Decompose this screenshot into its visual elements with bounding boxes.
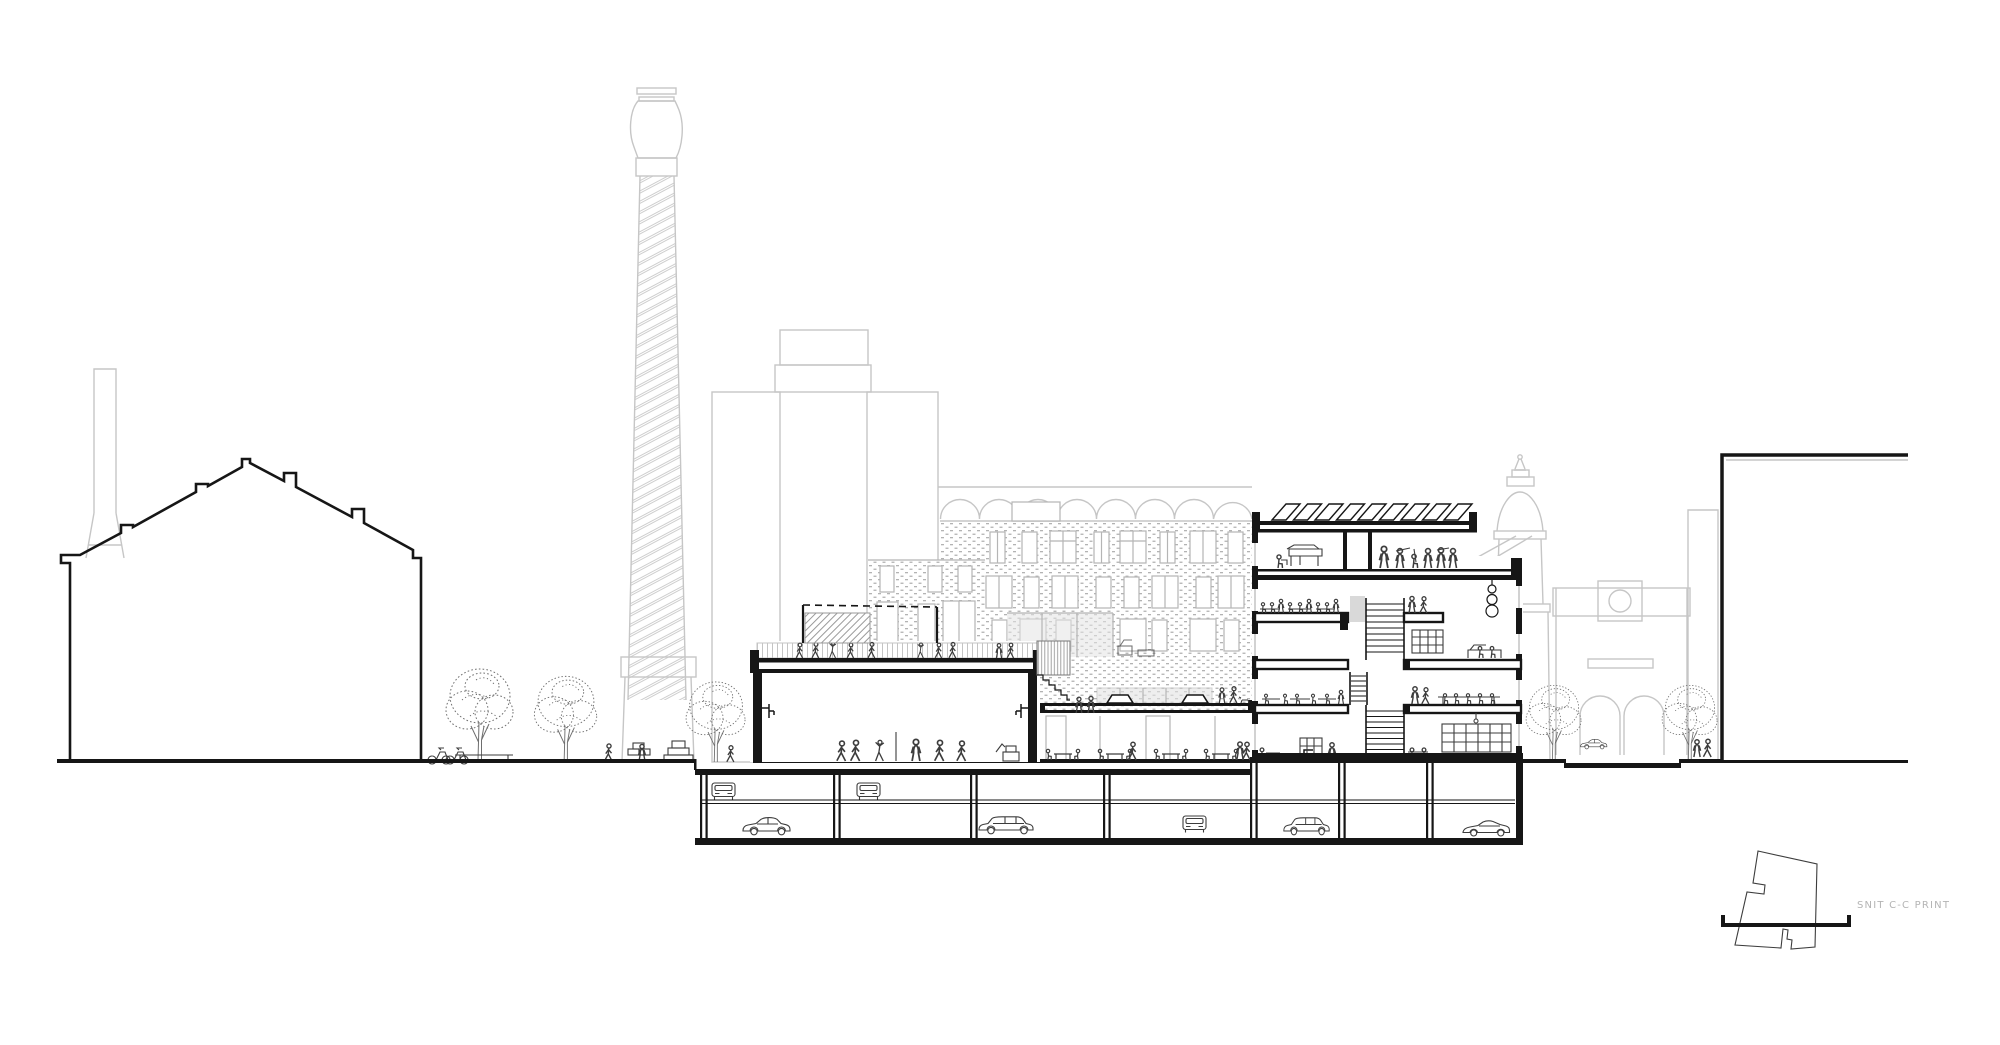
tree-icon (1662, 685, 1717, 760)
mezzanine-slab-right (1404, 613, 1443, 622)
pedestrian (639, 744, 646, 761)
ornate-chimney (621, 88, 696, 762)
architectural-section-sheet: SNIT C-C PRINT (0, 0, 2000, 1045)
tree-icon (446, 669, 513, 760)
foreground-wing-facade (868, 560, 985, 642)
mezzanine-slab-left (1255, 613, 1348, 622)
building-ground-slab (1252, 753, 1523, 763)
tree-icon (1526, 685, 1581, 760)
parked-car-icon (979, 817, 1033, 834)
hall-wall-right (1028, 673, 1037, 762)
background-edge-right (1688, 510, 1718, 760)
parking-garage (695, 753, 1523, 845)
parked-car-icon (1183, 816, 1206, 833)
street-car-icon (1581, 739, 1607, 749)
pedestrian (727, 746, 734, 762)
section-drawing: SNIT C-C PRINT (0, 0, 2000, 1045)
tree-icon (534, 676, 596, 761)
stepped-gable-building (61, 459, 421, 762)
parked-car-icon (712, 783, 735, 800)
hall-wall-left (753, 673, 762, 762)
parked-car-icon (743, 818, 790, 835)
stair-enclosure (1350, 596, 1365, 622)
tree-icon (686, 682, 745, 762)
main-building-section (1252, 504, 1523, 763)
right-building (1722, 455, 1908, 760)
crates (628, 741, 693, 762)
parked-car-icon (1284, 818, 1329, 835)
garage-ceiling-slab (695, 769, 1252, 775)
stair-balustrade (1037, 641, 1070, 675)
garage-floor-slab (695, 838, 1523, 845)
pedestrian (1703, 739, 1711, 757)
pedestrian (1693, 740, 1700, 757)
roof-terrace-railing (757, 643, 1067, 658)
key-plan-site-outline (1735, 851, 1817, 949)
parked-car-icon (857, 783, 880, 800)
street-section (1566, 763, 1679, 768)
pedestrian (605, 744, 612, 761)
key-plan-label: SNIT C-C PRINT (1857, 900, 1950, 911)
terrace-hatched-wall (805, 613, 870, 643)
parked-car-icon (1463, 821, 1510, 836)
arched-gate-building (1553, 581, 1690, 755)
key-plan: SNIT C-C PRINT (1723, 851, 1950, 949)
small-chimney-icon (86, 369, 124, 558)
